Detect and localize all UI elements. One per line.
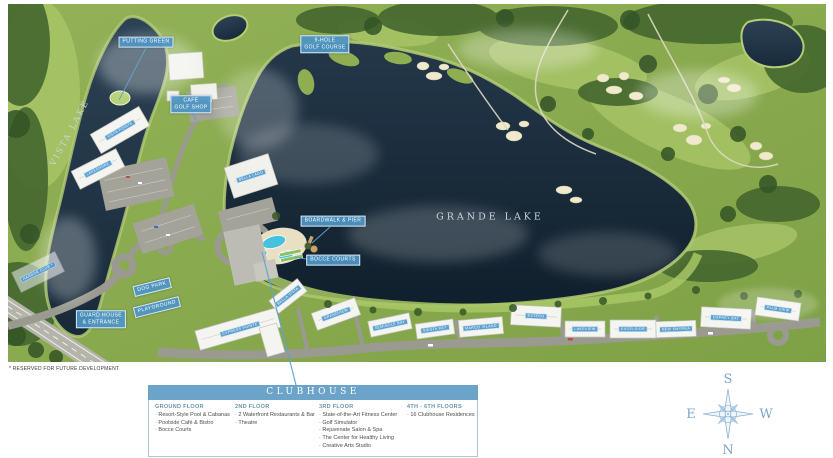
legend-column-heading: 3RD FLOOR — [319, 404, 407, 410]
bldg-lakeview-label: LAKEVIEW — [572, 326, 598, 331]
legend-item: 2 Waterfront Restaurants & Bar — [235, 412, 319, 420]
legend-item: Poolside Café & Bistro — [155, 420, 235, 428]
legend-item: 16 Clubhouse Residences — [407, 412, 475, 420]
legend-title: CLUBHOUSE — [148, 385, 478, 400]
legend-item: Creative Arts Studio — [319, 443, 407, 451]
legend-column-3: 3RD FLOORState-of-the-Art Fitness Center… — [319, 404, 407, 450]
future-development-footnote: * RESERVED FOR FUTURE DEVELOPMENT — [9, 366, 119, 372]
golf-course-label: 9-HOLEGOLF COURSE — [300, 35, 349, 53]
legend-item: Bocce Courts — [155, 427, 235, 435]
compass-rose: S E W N — [674, 367, 786, 458]
compass-bottom-letter: N — [722, 443, 733, 458]
putting-green-label: PUTTING GREEN — [119, 37, 174, 48]
legend-item: State-of-the-Art Fitness Center — [319, 412, 407, 420]
legend-item: Golf Simulator — [319, 420, 407, 428]
clubhouse-legend: CLUBHOUSE GROUND FLOORResort-Style Pool … — [148, 385, 478, 457]
bldg-excelsior-label: EXCELSIOR — [619, 326, 647, 331]
compass-top-letter: S — [724, 372, 733, 387]
legend-item: Rejuvenate Salon & Spa — [319, 427, 407, 435]
legend-column-heading: 2ND FLOOR — [235, 404, 319, 410]
boardwalk-pier-label: BOARDWALK & PIER — [301, 216, 366, 227]
bocce-courts-label: BOCCE COURTS — [306, 255, 360, 266]
legend-column-heading: GROUND FLOOR — [155, 404, 235, 410]
putting-green-area — [110, 91, 130, 105]
site-plan-page: GRANDE LAKE VISTA LAKE PUTTING GREENCAFÉ… — [0, 0, 833, 458]
legend-column-4: 4TH - 6TH FLOORS16 Clubhouse Residences — [407, 404, 475, 420]
aerial-site-map — [8, 4, 826, 362]
compass-left-letter: E — [686, 407, 696, 422]
legend-column-1: GROUND FLOORResort-Style Pool & CabanasP… — [155, 404, 235, 435]
cafe-golf-shop-label: CAFÉGOLF SHOP — [170, 95, 211, 113]
legend-item: Resort-Style Pool & Cabanas — [155, 412, 235, 420]
bldg-estero-label: ESTERO — [525, 313, 547, 319]
legend-column-heading: 4TH - 6TH FLOORS — [407, 404, 475, 410]
legend-item: The Center for Healthy Living — [319, 435, 407, 443]
grande-lake-label: GRANDE LAKE — [436, 212, 544, 223]
legend-body: GROUND FLOORResort-Style Pool & CabanasP… — [148, 400, 478, 457]
guard-house-label: GUARD HOUSE& ENTRANCE — [76, 310, 126, 328]
compass-right-letter: W — [759, 407, 773, 422]
legend-column-2: 2ND FLOOR2 Waterfront Restaurants & BarT… — [235, 404, 319, 427]
legend-item: Theatre — [235, 420, 319, 428]
